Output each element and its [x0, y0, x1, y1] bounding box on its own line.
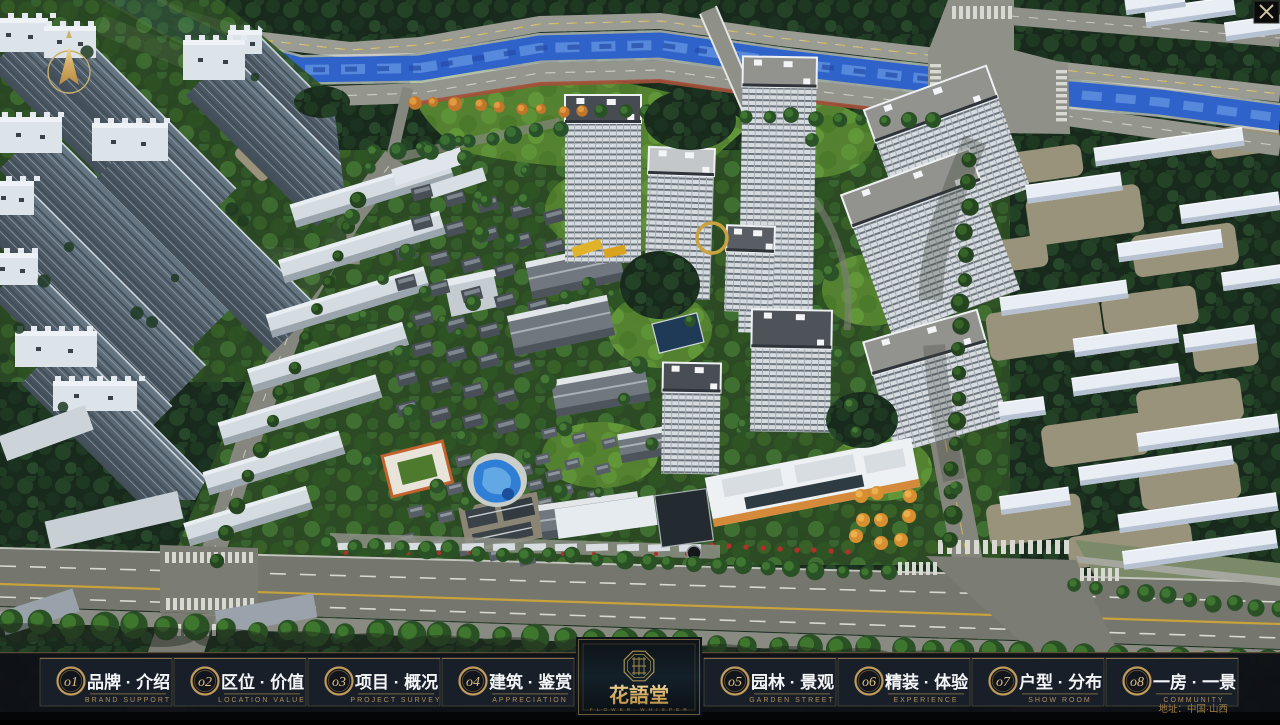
- svg-text:o4: o4: [466, 675, 480, 690]
- svg-text:o7: o7: [996, 675, 1011, 690]
- svg-text:o5: o5: [728, 675, 742, 690]
- svg-text:建筑 · 鉴赏: 建筑 · 鉴赏: [489, 672, 572, 692]
- svg-text:花語堂: 花語堂: [609, 683, 669, 707]
- svg-text:PROJECT SURVEY: PROJECT SURVEY: [350, 697, 441, 704]
- svg-text:o6: o6: [862, 675, 876, 690]
- svg-text:o8: o8: [1130, 675, 1144, 690]
- svg-text:BRAND SUPPORT: BRAND SUPPORT: [85, 697, 171, 704]
- svg-text:品牌 · 介绍: 品牌 · 介绍: [87, 672, 170, 692]
- svg-text:APPRECIATION: APPRECIATION: [492, 697, 568, 704]
- svg-text:园林 · 景观: 园林 · 景观: [751, 672, 834, 692]
- svg-text:户型 · 分布: 户型 · 分布: [1019, 672, 1102, 692]
- svg-text:GARDEN STREET: GARDEN STREET: [749, 697, 835, 704]
- svg-text:精装 · 体验: 精装 · 体验: [885, 672, 969, 692]
- svg-text:COMMUNITY: COMMUNITY: [1163, 697, 1224, 704]
- svg-text:F L O W E R · W H I S P E R: F L O W E R · W H I S P E R: [590, 707, 688, 712]
- svg-text:LOCATION VALUE: LOCATION VALUE: [218, 697, 306, 704]
- svg-text:一房 · 一景: 一房 · 一景: [1153, 672, 1236, 692]
- svg-text:o1: o1: [64, 675, 78, 690]
- svg-text:区位 · 价值: 区位 · 价值: [221, 672, 304, 692]
- svg-text:地址：中国·山西: 地址：中国·山西: [1158, 703, 1228, 715]
- svg-text:o3: o3: [332, 675, 346, 690]
- svg-text:SHOW ROOM: SHOW ROOM: [1028, 697, 1092, 704]
- svg-text:项目 · 概况: 项目 · 概况: [355, 672, 438, 692]
- svg-text:o2: o2: [198, 675, 212, 690]
- svg-text:EXPERIENCE: EXPERIENCE: [893, 697, 958, 704]
